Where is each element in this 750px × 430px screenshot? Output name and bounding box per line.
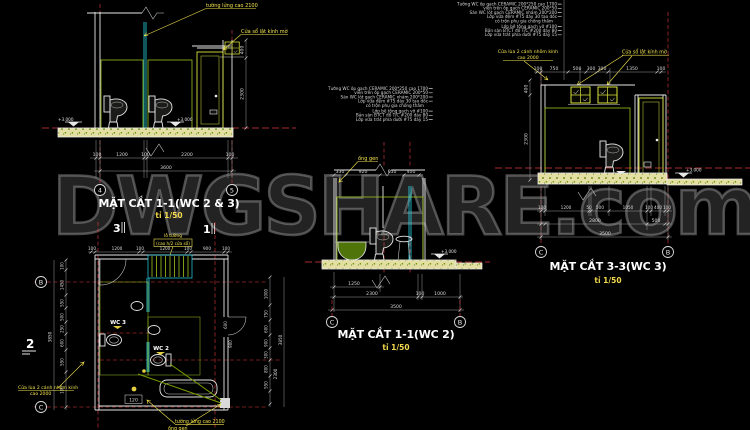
section-title: MẶT CẮT 3-3(WC 3) xyxy=(550,258,667,273)
dim-label: 500 xyxy=(596,205,604,210)
dim-label: 500 xyxy=(573,66,582,72)
dim-label: 1200 xyxy=(160,246,171,251)
window xyxy=(598,87,617,103)
note-line: Lớp vữa trát phía dưới #75 dày 15 xyxy=(485,32,557,37)
dim-label: 100 xyxy=(416,291,425,297)
toilet-icon xyxy=(370,228,393,260)
section-title: MẶT CẮT 1-1(WC 2 & 3) xyxy=(98,195,239,210)
grid-bubble-label: C xyxy=(39,403,44,411)
dim-total: 3850 xyxy=(48,331,53,342)
dim-label: 1250 xyxy=(348,281,360,287)
socket xyxy=(210,110,217,114)
section-scale: tỉ 1/50 xyxy=(594,276,621,285)
cad-canvas: Tường WC ốp gạch CERAMIC 200*250 cao 170… xyxy=(0,0,750,430)
toilet-plan-wc3 xyxy=(100,334,122,346)
section-1-1-wc23: +3.000 +3.000 100 1200 100 2200 100 3600… xyxy=(42,2,296,236)
cad-screenshot: DWGSHARE.com xyxy=(0,0,750,430)
duct-shaft xyxy=(220,398,230,408)
window xyxy=(225,42,239,54)
dim-total: 3500 xyxy=(390,304,402,310)
lo-tuong-label: lỗ tường xyxy=(164,232,182,239)
break-line xyxy=(142,7,164,19)
grid-bubble-label: 5 xyxy=(230,186,234,194)
door-handle xyxy=(215,95,218,98)
dim-label: 1200 xyxy=(112,246,123,251)
section-marker-1: 1 xyxy=(203,223,211,236)
dim-label: 100 xyxy=(88,246,96,251)
dim-label: 50 xyxy=(586,205,592,210)
note-line: Lớp vữa trát phía dưới #75 dày 15 xyxy=(356,117,428,122)
section-scale: tỉ 1/50 xyxy=(382,343,409,352)
louver-bars xyxy=(152,256,188,277)
dim-label: 100 xyxy=(136,246,144,251)
floor-slab xyxy=(322,260,456,269)
door-handle xyxy=(656,139,659,142)
notes-block-center: Tường WC ốp gạch CERAMIC 200*250 cao 170… xyxy=(327,86,433,122)
dim-label: 100 xyxy=(60,262,65,270)
dim-label: 100 xyxy=(222,246,230,251)
dim-label: 400 xyxy=(240,46,246,55)
sink-plan xyxy=(131,302,160,335)
fixture-axes xyxy=(100,333,280,360)
dim-label: 300 xyxy=(598,66,607,72)
ong-gen-label: ống gen xyxy=(358,155,378,162)
leader xyxy=(170,247,173,256)
dim-label: 1350 xyxy=(626,66,638,72)
dim-total: 3850 xyxy=(278,334,283,345)
dim-label: 1000 xyxy=(434,291,446,297)
dim-label: 600 xyxy=(223,321,228,329)
level-value: +3.000 xyxy=(58,117,74,122)
grid-bubble-label: B xyxy=(39,278,43,286)
annotation-ong-gen-plan: ống gen xyxy=(168,404,221,430)
level-flag xyxy=(431,254,448,259)
wall-th-label: 120 xyxy=(129,398,138,404)
cua-so-label: Cửa sổ lật kính mờ xyxy=(622,49,667,56)
dim-label: 2300 xyxy=(273,368,278,379)
dim-label: 400 xyxy=(654,205,662,210)
dim-label: 2300 xyxy=(524,133,530,145)
dim-label: 550 xyxy=(60,358,65,366)
note-ticks xyxy=(558,4,562,35)
floor-drain xyxy=(132,387,137,392)
dim-label: 1200 xyxy=(116,152,128,158)
dim-label: 100 xyxy=(184,246,192,251)
window xyxy=(571,87,590,103)
dim-label: 250 xyxy=(60,325,65,333)
floor-slab xyxy=(58,128,233,137)
annotation-cua-lua-plan: Cửa lùa 2 cánh nhôm kính cao 2000 xyxy=(18,362,84,397)
dim-label: 750 xyxy=(264,310,269,318)
tuong-lung-label: tường lửng cao 2100 xyxy=(175,418,225,425)
dim-label: 600 xyxy=(60,339,65,347)
leader xyxy=(144,9,206,37)
leader xyxy=(147,400,175,424)
bathtub-plan xyxy=(160,380,217,397)
grid-bubble-label: C xyxy=(330,318,335,326)
cua-lua-label: Cửa lùa 2 cánh nhôm kính xyxy=(18,384,78,391)
level-value: +3.000 xyxy=(441,249,457,254)
partition xyxy=(144,22,146,128)
level-flag xyxy=(65,122,82,127)
tile-wall xyxy=(545,108,630,175)
dim-label: 500 xyxy=(652,218,661,224)
note-line: có trộn phụ gia chống thấm xyxy=(495,18,553,23)
dim-label: 100 xyxy=(645,205,653,210)
dim-label: 900 xyxy=(264,339,269,347)
note-line: có trộn phụ gia chống thấm xyxy=(366,103,424,108)
room-arrow xyxy=(113,326,122,329)
floor-ledge xyxy=(667,179,742,185)
toilet-icon xyxy=(104,96,127,128)
floor-ledge xyxy=(456,263,482,269)
dim-label: 750 xyxy=(550,66,559,72)
dim-label: 550 xyxy=(60,299,65,307)
dim-label: 920 xyxy=(359,169,368,175)
marker-bars xyxy=(122,222,125,233)
section-marker-2: 2 xyxy=(26,337,34,351)
tile-floor-wc3 xyxy=(100,282,148,375)
lavabo-icon xyxy=(396,236,412,260)
note-ticks xyxy=(429,89,433,120)
level-value: +3.000 xyxy=(177,117,193,122)
dim-label: 100 xyxy=(657,66,666,72)
annotation-tuong-lung-plan: tường lửng cao 2100 xyxy=(147,400,225,425)
door-arc xyxy=(100,259,126,285)
break-line xyxy=(578,188,596,200)
dim-label: 1000 xyxy=(264,288,269,299)
floor-drain xyxy=(142,369,146,373)
level-flag xyxy=(167,122,184,127)
annotation-cua-lua-top: Cửa lùa 2 cánh nhôm kính cao 2000 xyxy=(498,48,558,80)
dim-label: 1200 xyxy=(561,205,572,210)
dim-label: 400 xyxy=(524,85,530,94)
dim-label: 100 xyxy=(663,205,671,210)
grid-bubble-label: 4 xyxy=(98,186,102,194)
dim-label: 900 xyxy=(228,340,233,348)
extension-lines xyxy=(96,140,232,178)
grid-bubble-label: B xyxy=(458,318,462,326)
cua-lua-sub: cao 2000 xyxy=(30,391,51,397)
marker-bars xyxy=(22,351,36,354)
dim-total: 3500 xyxy=(599,231,611,237)
dim-label: 330 xyxy=(336,169,345,175)
toilet-icon xyxy=(149,96,172,128)
plan-view: lỗ tường (cao h/2 cửa sổ) 100 1200 100 1… xyxy=(18,222,284,430)
dim-label: 2200 xyxy=(181,152,193,158)
dim-label: 1450 xyxy=(60,279,65,290)
dim-label: 300 xyxy=(587,66,596,72)
dim-label: 550 xyxy=(264,381,269,389)
ong-gen-label: ống gen xyxy=(168,425,188,430)
dim-label: 2800 xyxy=(589,218,601,224)
dim-label: 900 xyxy=(203,246,211,251)
level-value: +3.000 xyxy=(686,168,702,173)
level-flag xyxy=(675,173,692,178)
dim-total: 3600 xyxy=(160,165,172,171)
section-marker-3: 3 xyxy=(113,222,121,235)
dim-label: 100 xyxy=(93,152,102,158)
dim-label: 100 xyxy=(534,66,543,72)
room-label-wc2: WC 2 xyxy=(153,346,169,352)
dim-label: 2300 xyxy=(240,88,246,100)
section-title: MẶT CẮT 1-1(WC 2) xyxy=(338,326,455,341)
dim-label: 2300 xyxy=(366,291,378,297)
cua-so-label: Cửa sổ lật kính mờ xyxy=(241,28,289,35)
socket xyxy=(644,162,651,167)
tile-wall-left xyxy=(101,60,143,128)
notes-block-topright: Tường WC ốp gạch CERAMIC 200*250 cao 170… xyxy=(456,0,564,80)
dim-label: 600 xyxy=(264,325,269,333)
dim-label: 1050 xyxy=(623,205,634,210)
door-arc xyxy=(228,317,246,335)
dim-label: 800 xyxy=(264,365,269,373)
dim-label: 100 xyxy=(226,152,235,158)
floor-slab xyxy=(538,173,667,184)
dim-label: 500 xyxy=(60,313,65,321)
dim-label: 100 xyxy=(538,205,546,210)
dim-label: 300 xyxy=(264,351,269,359)
section-1-1-wc2: ống gen 330 920 650 400 xyxy=(305,142,490,352)
room-label-wc3: WC 3 xyxy=(110,320,126,326)
cua-lua-label: Cửa lùa 2 cánh nhôm kính xyxy=(498,48,558,55)
tuong-lung-label: tường lửng cao 2100 xyxy=(206,2,258,9)
section-scale: tỉ 1/50 xyxy=(155,211,182,220)
cua-lua-sub: cao 2000 xyxy=(517,55,538,61)
bathtub-section xyxy=(338,242,366,260)
marker-bars xyxy=(212,223,215,234)
dim-label: 400 xyxy=(407,169,416,175)
grid-bubble-label: B xyxy=(666,248,670,256)
dim-label: 650 xyxy=(388,169,397,175)
dim-label: 100 xyxy=(141,152,150,158)
grid-bubble-label: C xyxy=(539,248,544,256)
axis-ticks xyxy=(384,142,410,274)
